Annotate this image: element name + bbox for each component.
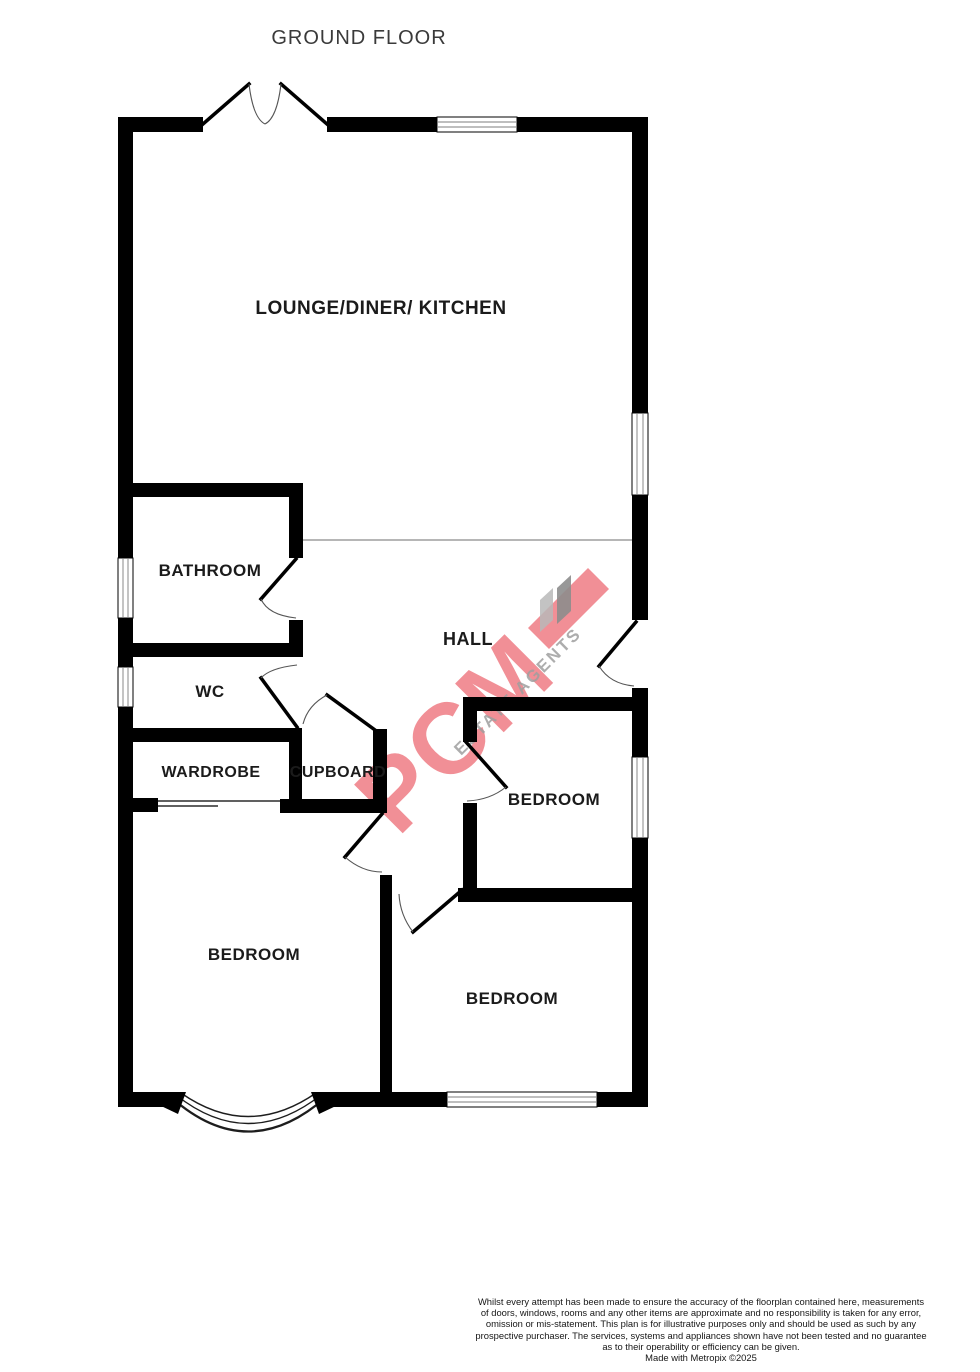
wardrobe-opening [155,801,280,806]
wall-segment-bathroom-bottom [133,643,303,657]
disclaimer-line: as to their operability or efficiency ca… [467,1341,935,1352]
window-top [437,117,517,132]
wall-segment [632,838,648,1107]
wall-segment-bedroom-divider [380,875,392,1107]
room-label-bedroom-top-right: BEDROOM [508,790,600,809]
bay-window [159,1092,338,1132]
window-lounge-right [632,413,648,495]
window-wc [118,667,133,707]
wall-segment-bathroom-top [133,483,303,497]
wall-segment [632,495,648,620]
wall-segment-bathroom-right [289,483,303,558]
wall-segment-wardrobe-bottom [118,798,158,812]
wall-segment [118,707,133,1107]
footer-disclaimer: Whilst every attempt has been made to en… [467,1296,935,1363]
floorplan-page: GROUND FLOOR [0,0,980,1372]
room-label-bedroom-bottom-right: BEDROOM [466,989,558,1008]
window-bathroom [118,558,133,618]
wall-segment [632,688,648,757]
wall-segment [118,117,133,558]
room-label-bedroom-bottom-left: BEDROOM [208,945,300,964]
wall-segment [632,117,648,413]
door-wc [261,665,297,727]
french-doors-entrance [203,84,327,124]
room-label-bathroom: BATHROOM [159,561,262,580]
wall-segment [517,117,648,132]
wall-segment [597,1092,648,1107]
wall-segment [118,618,133,667]
door-bedroom-bottom-left [345,814,382,872]
disclaimer-line: omission or mis-statement. This plan is … [467,1318,935,1329]
wall-segment [327,117,437,132]
room-label-hall: HALL [443,629,493,649]
window-bedroom-right [632,757,648,838]
room-label-lounge: LOUNGE/DINER/ KITCHEN [255,298,506,319]
window-bedroom-bottom [447,1092,597,1107]
wall-segment-bedroom-left [463,803,477,902]
door-bedroom-bottom-right [399,890,462,932]
disclaimer-line: Whilst every attempt has been made to en… [467,1296,935,1307]
disclaimer-line: prospective purchaser. The services, sys… [467,1330,935,1341]
watermark-brand: PCM [334,613,575,854]
disclaimer-line: of doors, windows, rooms and any other i… [467,1307,935,1318]
wall-segment-wardrobe-top [133,728,302,742]
wall-segment-bedroom-bottom [458,888,648,902]
room-label-cupboard: CUPBOARD [290,764,386,781]
metropix-credit: Made with Metropix ©2025 [467,1352,935,1363]
door-cupboard [303,695,375,730]
door-bathroom [261,559,296,618]
room-label-wc: WC [195,682,224,701]
floorplan-drawing: PCM ESTATE AGENTS LOUNGE/DINER/ KITCHEN … [0,0,980,1372]
door-side-entrance [599,622,636,686]
room-label-wardrobe: WARDROBE [161,764,260,781]
